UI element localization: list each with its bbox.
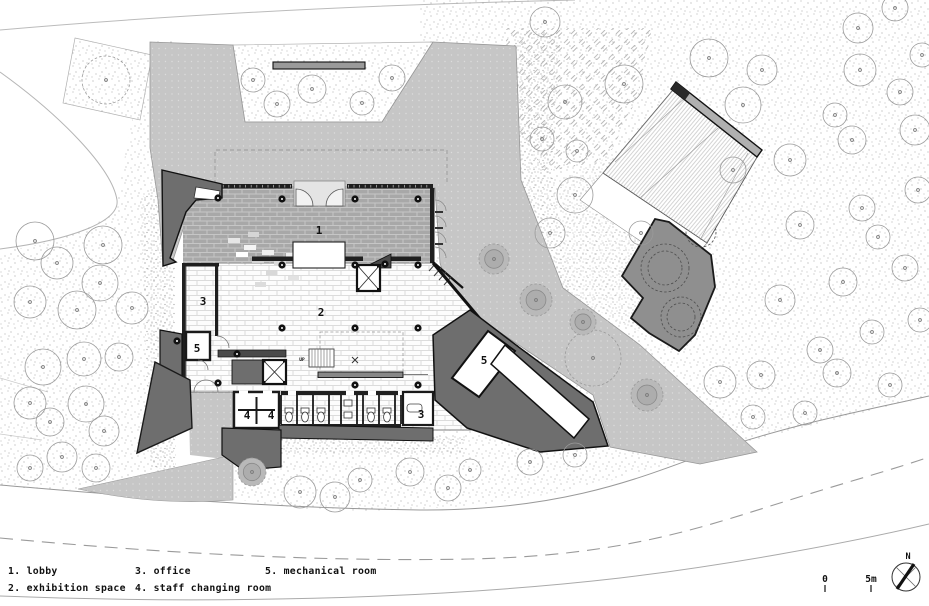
column — [414, 261, 421, 268]
legend-item: 2. exhibition space — [8, 582, 126, 594]
label-staff-a: 4 — [244, 409, 251, 422]
north-compass: N — [892, 552, 920, 591]
column — [278, 261, 285, 268]
elevator-1 — [356, 264, 381, 292]
office-upper-wall — [215, 266, 218, 336]
column — [214, 379, 221, 386]
elevator-2 — [262, 359, 287, 385]
column — [351, 261, 358, 268]
column — [233, 350, 240, 357]
column — [414, 324, 421, 331]
label-lobby: 1 — [316, 224, 323, 237]
label-mech-right: 5 — [481, 354, 488, 367]
column — [173, 337, 180, 344]
interior-wall-stub — [218, 350, 286, 357]
legend-item: 3. office — [135, 565, 191, 577]
site-plan: UP — [0, 0, 929, 606]
legend: 1. lobby 2. exhibition space 3. office 4… — [8, 565, 377, 594]
column — [381, 260, 388, 267]
site-plan-svg: UP — [0, 0, 929, 606]
south-wall-poche — [279, 425, 433, 441]
column — [414, 195, 421, 202]
tree — [570, 309, 596, 335]
compass-north-label: N — [905, 552, 910, 562]
label-mech-left: 5 — [194, 342, 201, 355]
display-bench — [318, 372, 403, 378]
legend-item: 1. lobby — [8, 566, 58, 577]
scale-zero: 0 — [822, 574, 828, 585]
column — [351, 195, 358, 202]
legend-item: 4. staff changing room — [135, 582, 271, 594]
reception-desk — [293, 242, 345, 268]
scale-five: 5m — [865, 574, 877, 585]
main-entrance — [294, 181, 345, 206]
tree — [631, 379, 663, 411]
planter-bench — [273, 62, 365, 69]
tree — [479, 244, 509, 274]
label-staff-b: 4 — [268, 409, 275, 422]
label-office-upper: 3 — [200, 295, 207, 308]
column — [351, 324, 358, 331]
legend-item: 5. mechanical room — [265, 565, 377, 577]
label-office-lower: 3 — [418, 408, 425, 421]
stair-up-label: UP — [299, 357, 305, 363]
label-exhibition: 2 — [318, 306, 325, 319]
column — [278, 324, 285, 331]
tree — [238, 458, 266, 486]
column — [214, 194, 221, 201]
scale-bar: 0 5m — [822, 574, 877, 592]
column — [414, 381, 421, 388]
core-poche — [232, 360, 263, 384]
tree — [520, 284, 552, 316]
column — [351, 381, 358, 388]
column — [278, 195, 285, 202]
